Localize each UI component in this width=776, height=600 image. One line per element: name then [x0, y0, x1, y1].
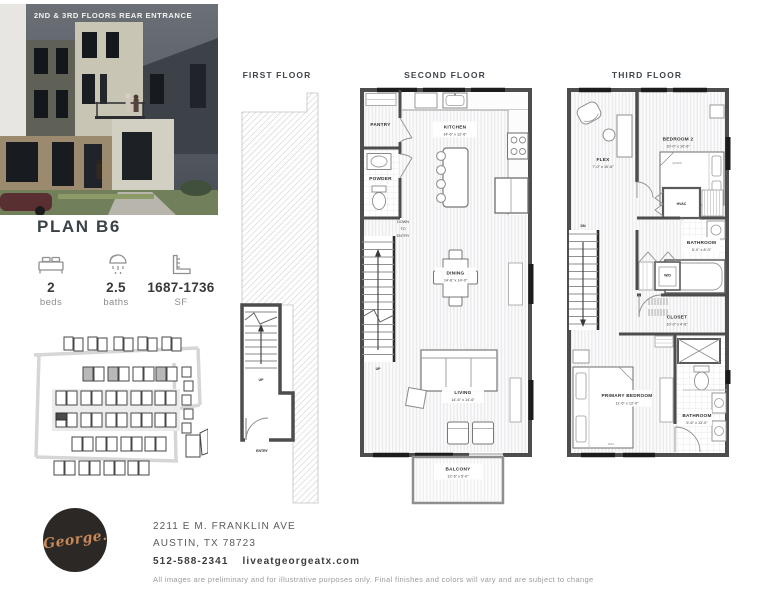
down-to-entry-3: ENTRY: [397, 234, 410, 238]
down-to-entry-2: TO: [400, 227, 405, 231]
balcony-dims: 12'-6" x 5'-0": [447, 475, 469, 479]
bath2-label: BATHROOM: [687, 240, 716, 245]
bath2-sink: [707, 221, 725, 239]
primary-label: PRIMARY BEDROOM: [602, 393, 653, 398]
second-floor-plan: PANTRY POWDER: [357, 84, 535, 508]
dn-label: DN: [580, 224, 586, 228]
flex-dims: 7'-0" x 10'-6": [592, 165, 614, 169]
address-line1: 2211 E M. FRANKLIN AVE: [153, 518, 360, 535]
stat-beds-value: 2: [28, 280, 74, 295]
first-floor-plan: UP ENTRY: [232, 86, 332, 510]
media-niche: [510, 378, 521, 422]
bath2-dims: 5'-0" x 8'-0": [692, 248, 712, 252]
address-line2: AUSTIN, TX 78723: [153, 535, 360, 552]
down-to-entry-1: DOWN: [397, 220, 409, 224]
balcony-label: BALCONY: [446, 467, 472, 472]
pantry-label: PANTRY: [370, 122, 391, 127]
phone-number: 512-588-2341: [153, 556, 228, 567]
range: [508, 133, 529, 159]
wall-niche: [509, 263, 523, 305]
community-site-map: [28, 333, 208, 481]
building-rendering: 2ND & 3RD FLOORS REAR ENTRANCE: [0, 4, 218, 215]
person: [96, 159, 101, 179]
stat-sf: 1687-1736 SF: [140, 252, 222, 308]
desk-chair: [603, 129, 615, 141]
living-dims: 14'-6" x 14'-6": [451, 398, 475, 402]
primary-bed: KING: [573, 367, 633, 448]
king-label: KING: [608, 442, 615, 446]
website: liveatgeorgeatx.com: [242, 556, 360, 567]
powder-sink: [367, 154, 391, 170]
photo-caption: 2ND & 3RD FLOORS REAR ENTRANCE: [34, 11, 192, 20]
first-up-label: UP: [259, 378, 265, 382]
disclaimer: All images are preliminary and for illus…: [153, 575, 594, 584]
third-floor-plan: FLEX 7'-0" x 10'-6" BEDROOM 2 10'-0" x 1…: [563, 84, 733, 508]
washer-dryer: W/D: [655, 262, 680, 290]
contact-block: 2211 E M. FRANKLIN AVE AUSTIN, TX 78723 …: [153, 518, 360, 570]
entry-stair-unit: [242, 305, 293, 440]
cooktop-cabinet: [415, 93, 437, 108]
sofa: [421, 350, 497, 391]
kitchen-sink: [443, 93, 467, 108]
living-label: LIVING: [454, 390, 471, 395]
primary-bath-dims: 5'-6" x 13'-0": [686, 421, 708, 425]
shower2: [678, 339, 720, 363]
entry-label: ENTRY: [256, 449, 268, 453]
primary-bath-label: BATHROOM: [682, 413, 711, 418]
second-up-label: UP: [376, 367, 382, 371]
primary-dims: 11'-6" x 12'-0": [615, 402, 639, 406]
plan-title: PLAN B6: [37, 217, 121, 237]
stat-beds: 2 beds: [28, 252, 74, 308]
queen-label: QUEEN: [672, 161, 682, 165]
stat-baths-value: 2.5: [88, 280, 144, 295]
hvac-label: HVAC: [677, 202, 687, 206]
shelving: [702, 190, 723, 216]
dresser: [660, 378, 673, 422]
second-floor-title: SECOND FLOOR: [397, 70, 493, 80]
stat-beds-label: beds: [28, 297, 74, 308]
closet-dims: 10'-0" x 4'-6": [666, 323, 688, 327]
first-floor-title: FIRST FLOOR: [229, 70, 325, 80]
linen-cabinet: [655, 336, 673, 347]
shower-icon: [101, 252, 131, 278]
dining-dims: 14'-6" x 14'-0": [444, 279, 468, 283]
stat-baths: 2.5 baths: [88, 252, 144, 308]
powder-toilet: [372, 186, 386, 210]
bedroom2-label: BEDROOM 2: [663, 137, 694, 142]
george-logo: George.: [43, 508, 107, 572]
kitchen-label: KITCHEN: [444, 125, 467, 130]
toilet: [694, 366, 709, 390]
bed-icon: [36, 252, 66, 278]
stat-sf-value: 1687-1736: [140, 280, 222, 295]
closet-label: CLOSET: [667, 315, 688, 320]
third-floor-title: THIRD FLOOR: [599, 70, 695, 80]
flex-label: FLEX: [597, 157, 611, 162]
wd-label: W/D: [664, 274, 671, 278]
kitchen-dims: 14'-6" x 12'-6": [443, 133, 467, 137]
side-table: [406, 388, 427, 409]
george-logo-text: George.: [42, 528, 108, 553]
dining-label: DINING: [447, 271, 465, 276]
stat-baths-label: baths: [88, 297, 144, 308]
nightstand: [573, 350, 589, 363]
square-feet-icon: [166, 252, 196, 278]
linen-closet: [639, 262, 653, 290]
stat-sf-label: SF: [140, 297, 222, 308]
left-wall: [0, 4, 26, 136]
plan-sheet: 2ND & 3RD FLOORS REAR ENTRANCE PLAN B6 2…: [0, 0, 776, 600]
powder-label: POWDER: [369, 176, 392, 181]
nightstand: [710, 105, 724, 118]
bedroom2-dims: 10'-0" x 10'-6": [666, 145, 690, 149]
desk: [617, 115, 632, 157]
refrigerator: [495, 178, 528, 213]
